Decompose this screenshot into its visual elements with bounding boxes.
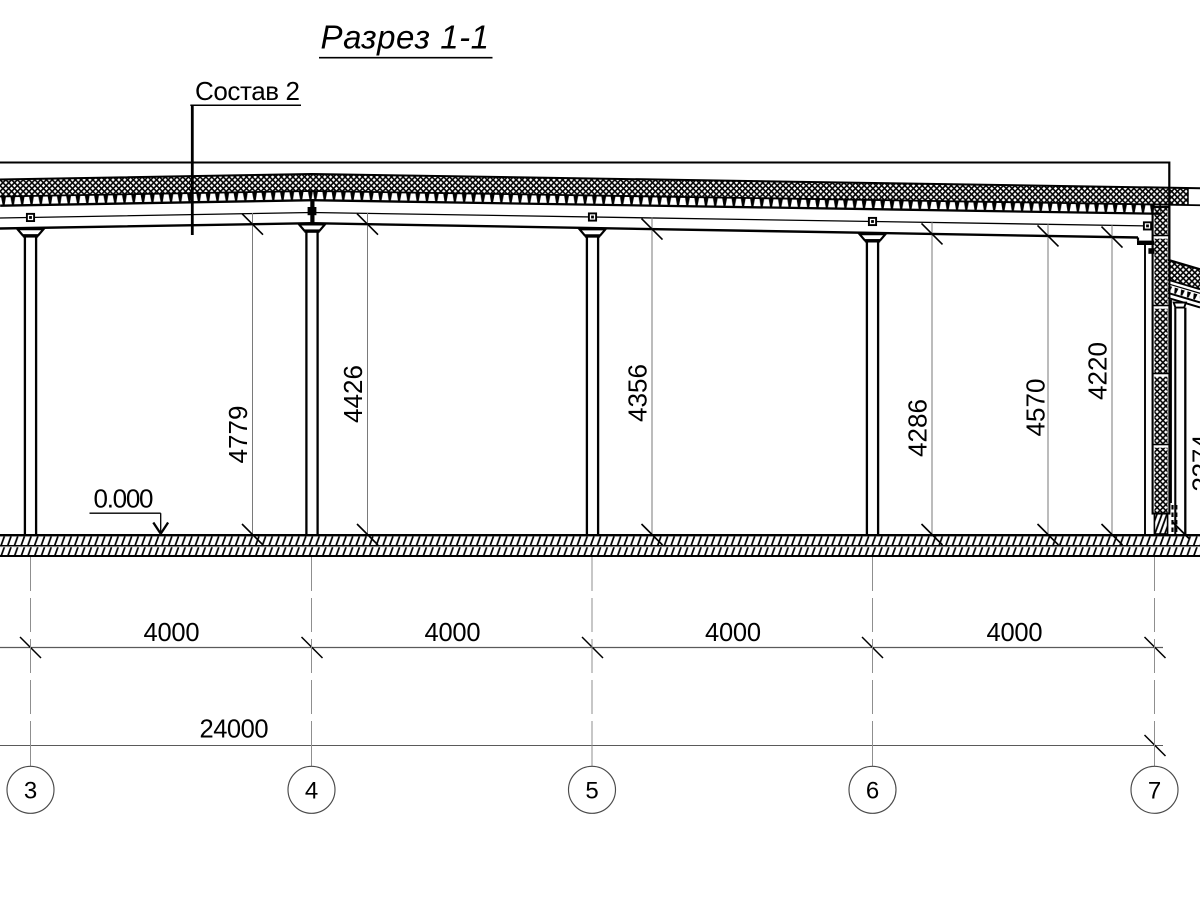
svg-text:4000: 4000 xyxy=(425,619,481,647)
svg-text:4000: 4000 xyxy=(144,619,200,647)
svg-text:24000: 24000 xyxy=(200,716,269,744)
svg-text:4: 4 xyxy=(305,778,318,805)
svg-text:4220: 4220 xyxy=(1082,342,1112,400)
svg-text:4000: 4000 xyxy=(705,619,761,647)
svg-text:Состав 2: Состав 2 xyxy=(195,76,300,106)
svg-text:5: 5 xyxy=(585,778,598,805)
svg-text:Разрез 1-1: Разрез 1-1 xyxy=(321,18,490,55)
svg-text:3: 3 xyxy=(24,778,37,805)
svg-text:4000: 4000 xyxy=(987,619,1043,647)
svg-text:4426: 4426 xyxy=(338,365,368,423)
svg-text:4286: 4286 xyxy=(902,399,932,457)
svg-text:6: 6 xyxy=(866,778,879,805)
svg-text:4779: 4779 xyxy=(223,406,253,464)
svg-text:3374: 3374 xyxy=(1187,435,1200,492)
svg-text:7: 7 xyxy=(1148,778,1161,805)
svg-text:4356: 4356 xyxy=(622,364,652,422)
svg-text:4570: 4570 xyxy=(1020,379,1050,437)
svg-text:0.000: 0.000 xyxy=(94,484,154,514)
